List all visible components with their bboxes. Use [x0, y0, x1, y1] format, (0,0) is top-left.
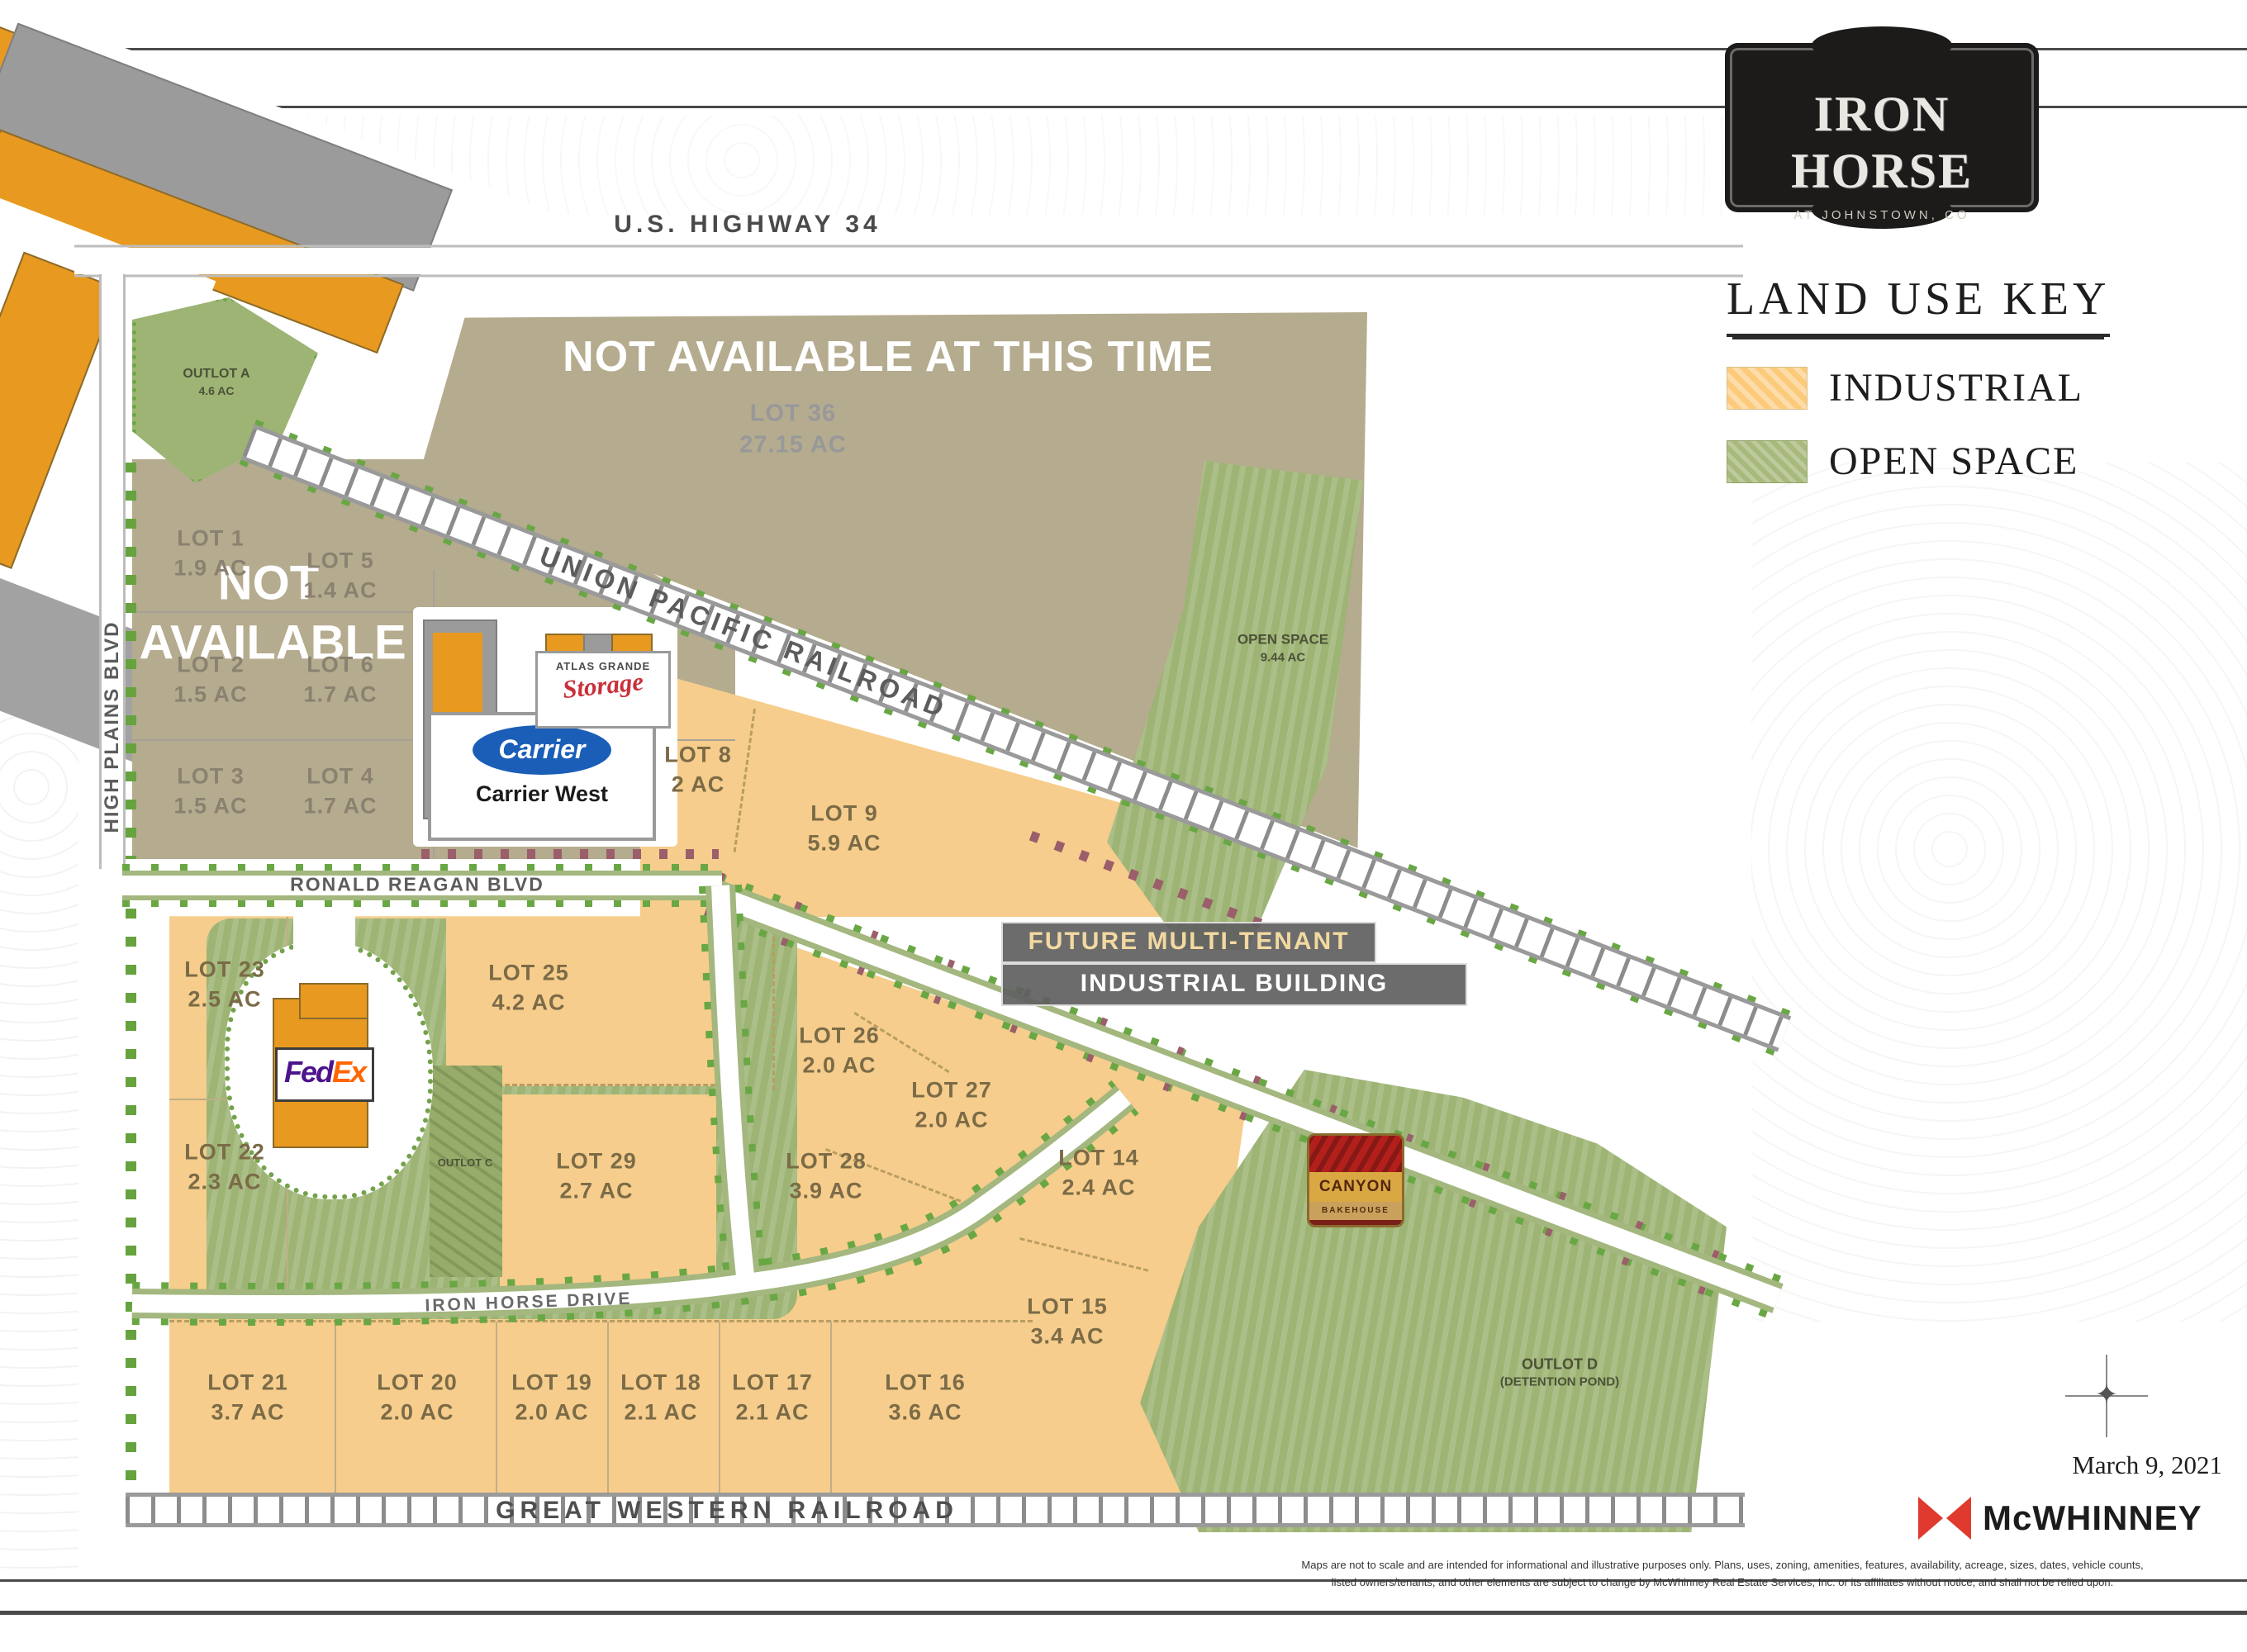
topo-texture-right — [1751, 463, 2247, 1322]
future-building-label-line1: FUTURE MULTI-TENANT — [1001, 922, 1376, 963]
carrier-west-sign: Carrier Carrier West — [428, 712, 656, 841]
lot-label-lot-4: LOT 41.7 AC — [303, 762, 377, 820]
lot-label-lot-5: LOT 51.4 AC — [303, 546, 377, 605]
lot-label-lot-22: LOT 222.3 AC — [184, 1137, 265, 1196]
lot-label-lot-29: LOT 292.7 AC — [556, 1146, 637, 1205]
land-use-key: LAND USE KEY INDUSTRIAL OPEN SPACE — [1727, 273, 2189, 484]
fedex-logo-fed: Fed — [284, 1055, 332, 1089]
outlot-d-label: OUTLOT D (DETENTION POND) — [1500, 1355, 1619, 1392]
lot-label-lot-1: LOT 11.9 AC — [173, 524, 247, 582]
outlot-c-parcel — [430, 1066, 502, 1277]
lot-label-lot-3: LOT 31.5 AC — [173, 762, 247, 820]
tree-row-icon — [126, 463, 136, 859]
lot-label-lot-9: LOT 95.9 AC — [807, 799, 881, 857]
lot-boundary-dashed — [772, 929, 775, 1090]
industrial-swatch — [1727, 367, 1808, 410]
atlas-storage-sign: ATLAS GRANDE Storage — [535, 651, 671, 729]
fedex-building-wing — [299, 983, 368, 1019]
carrier-logo: Carrier — [473, 725, 611, 775]
iron-horse-logo-subtitle: AT JOHNSTOWN, CO — [1725, 208, 2039, 222]
fedex-logo-ex: Ex — [332, 1055, 365, 1089]
open-space-label: OPEN SPACE 9.44 AC — [1238, 630, 1328, 666]
mcwhinney-name: McWHINNEY — [1983, 1498, 2202, 1538]
lot-label-lot-8: LOT 82 AC — [664, 740, 732, 799]
future-building-label-line2: INDUSTRIAL BUILDING — [1001, 963, 1467, 1006]
road-label-ronald-reagan: RONALD REAGAN BLVD — [290, 874, 544, 896]
disclaimer-text: Maps are not to scale and are intended f… — [1206, 1556, 2239, 1592]
carrier-west-name: Carrier West — [431, 781, 653, 807]
canyon-logo-crest — [1309, 1136, 1402, 1172]
lot-boundary — [496, 1322, 497, 1493]
lot-label-lot-2: LOT 21.5 AC — [173, 650, 247, 709]
legend-item-open-space: OPEN SPACE — [1727, 439, 2189, 484]
iron-horse-logo-title: IRON HORSE — [1725, 86, 2039, 200]
iron-horse-logo: IRON HORSE AT JOHNSTOWN, CO — [1725, 43, 2039, 212]
bush-row-icon — [421, 849, 719, 859]
lot-label-lot-25: LOT 254.2 AC — [488, 958, 569, 1017]
lot-label-lot-18: LOT 182.1 AC — [620, 1368, 701, 1427]
road-label-great-western: GREAT WESTERN RAILROAD — [496, 1497, 958, 1525]
lot-label-lot-26: LOT 262.0 AC — [799, 1021, 880, 1080]
lot-label-lot-14: LOT 142.4 AC — [1058, 1143, 1139, 1202]
lot-label-lot-36: LOT 3627.15 AC — [739, 398, 846, 462]
legend-item-industrial: INDUSTRIAL — [1727, 365, 2189, 411]
lot-boundary — [830, 1322, 832, 1493]
bottom-rule-2 — [0, 1611, 2247, 1615]
land-use-key-title: LAND USE KEY — [1727, 273, 2110, 337]
fedex-driveway — [293, 900, 355, 958]
compass-icon: ✦ — [2065, 1355, 2148, 1437]
lot-label-lot-6: LOT 61.7 AC — [303, 650, 377, 709]
lot-boundary-dashed — [169, 1320, 1033, 1322]
road-label-us-highway-34: U.S. HIGHWAY 34 — [614, 211, 881, 239]
lot-boundary — [335, 1322, 336, 1493]
mcwhinney-bowtie-icon — [1918, 1497, 1971, 1540]
lot-label-lot-16: LOT 163.6 AC — [885, 1368, 966, 1427]
tree-row-icon — [126, 909, 136, 1487]
plan-date: March 9, 2021 — [1983, 1450, 2222, 1480]
lot-boundary — [607, 1322, 609, 1493]
lot-label-lot-15: LOT 153.4 AC — [1027, 1292, 1108, 1351]
outlot-a-label: OUTLOT A 4.6 AC — [183, 365, 249, 398]
canyon-bakehouse-logo: CANYON BAKEHOUSE — [1307, 1133, 1404, 1227]
open-space-swatch — [1727, 440, 1808, 483]
lot-label-lot-20: LOT 202.0 AC — [377, 1368, 458, 1427]
not-available-banner: NOT AVAILABLE AT THIS TIME — [563, 332, 1214, 382]
lot-label-lot-27: LOT 272.0 AC — [911, 1075, 992, 1134]
mcwhinney-logo: McWHINNEY — [1918, 1497, 2202, 1540]
canyon-building — [0, 252, 120, 569]
lot-label-lot-21: LOT 213.7 AC — [207, 1368, 288, 1427]
lot-label-lot-17: LOT 172.1 AC — [732, 1368, 813, 1427]
lot-label-lot-19: LOT 192.0 AC — [511, 1368, 592, 1427]
site-plan-page: U.S. HIGHWAY 34 UNION PACIFIC RAILROAD G… — [0, 0, 2247, 1652]
lot-boundary — [719, 1322, 720, 1493]
lot-label-lot-23: LOT 232.5 AC — [184, 955, 265, 1014]
road-label-high-plains: HIGH PLAINS BLVD — [101, 621, 124, 833]
lot-label-lot-28: LOT 283.9 AC — [786, 1146, 867, 1205]
fedex-sign: FedEx — [275, 1047, 374, 1102]
outlot-c-label: OUTLOT C — [438, 1156, 492, 1170]
